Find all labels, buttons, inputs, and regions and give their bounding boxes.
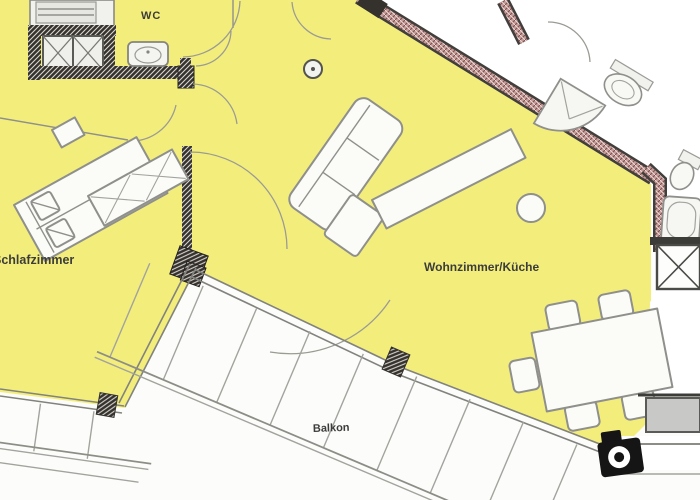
- shaft-left: [43, 36, 103, 70]
- dining-chair: [509, 357, 541, 393]
- wall-black: [28, 25, 116, 36]
- wall-black: [182, 146, 192, 262]
- appliance: [36, 2, 96, 23]
- wc-sink: [128, 42, 168, 66]
- neighbor-slab: [646, 398, 700, 432]
- room-label-wc: WC: [141, 10, 161, 22]
- wall-black: [180, 58, 191, 88]
- wall-black: [103, 34, 115, 68]
- column-octagon: [304, 60, 322, 78]
- utility-room: [30, 0, 114, 27]
- room-label-living: Wohnzimmer/Küche: [424, 260, 539, 274]
- room-label-bedroom: Schlafzimmer: [0, 253, 74, 267]
- balcony-post: [96, 393, 118, 418]
- floor-plan: WC Schlafzimmer Wohnzimmer/Küche Balkon: [0, 0, 700, 500]
- wall-black: [28, 66, 192, 79]
- shaft-right: [657, 245, 700, 289]
- room-label-balcony: Balkon: [313, 422, 350, 435]
- column-round: [517, 194, 545, 222]
